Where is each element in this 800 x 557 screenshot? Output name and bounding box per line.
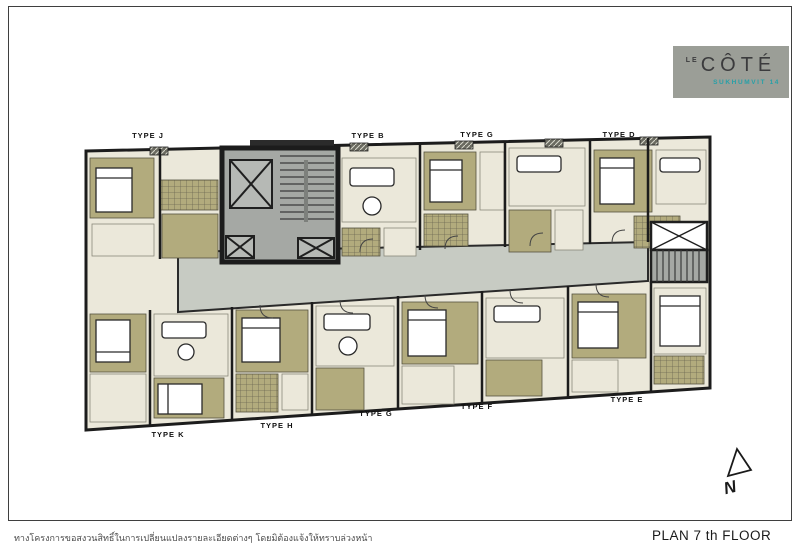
unit-type-label-bottom-k: TYPE K bbox=[151, 430, 184, 439]
room-bath bbox=[160, 180, 218, 210]
unit-type-label-top-j: TYPE J bbox=[132, 131, 164, 140]
unit-type-label-top-b: TYPE B bbox=[351, 131, 384, 140]
bed-icon bbox=[660, 296, 700, 346]
table-icon bbox=[339, 337, 357, 355]
logo-le: LE bbox=[686, 57, 699, 64]
bed-icon bbox=[96, 320, 130, 362]
bed-icon bbox=[578, 302, 618, 348]
sofa-icon bbox=[517, 156, 561, 172]
room-kitchen bbox=[316, 368, 364, 410]
room-bath bbox=[342, 228, 380, 256]
fire-stair bbox=[651, 222, 707, 282]
room-kitchen bbox=[486, 360, 542, 396]
room-hall bbox=[384, 228, 416, 256]
table-icon bbox=[178, 344, 194, 360]
room-bath bbox=[654, 356, 704, 384]
stair-icon bbox=[651, 250, 707, 282]
unit-type-label-top-d: TYPE D bbox=[602, 130, 635, 139]
sofa-icon bbox=[660, 158, 700, 172]
logo: LECÔTÉ SUKHUMVIT 14 bbox=[673, 46, 789, 98]
room-hall bbox=[480, 152, 504, 210]
room-hall bbox=[282, 374, 308, 410]
disclaimer-text: ทางโครงการขอสงวนสิทธิ์ในการเปลี่ยนแปลงรา… bbox=[14, 531, 372, 545]
building bbox=[86, 137, 710, 430]
elevator-shaft-icon bbox=[230, 160, 272, 208]
bed-icon bbox=[96, 168, 132, 212]
north-arrow-icon bbox=[728, 449, 751, 476]
room-living bbox=[92, 224, 154, 256]
bed-icon bbox=[158, 384, 202, 414]
room-living bbox=[402, 366, 454, 404]
plan-title: PLAN 7 th FLOOR bbox=[652, 528, 771, 543]
room-kitchen bbox=[162, 214, 218, 258]
room-hall bbox=[555, 210, 583, 250]
unit-type-label-bottom-h: TYPE H bbox=[260, 421, 293, 430]
unit-type-label-bottom-g: TYPE G bbox=[359, 409, 393, 418]
elevator-core bbox=[222, 140, 338, 262]
bed-icon bbox=[430, 160, 462, 202]
unit-type-label-bottom-f: TYPE F bbox=[461, 402, 493, 411]
room-bath bbox=[236, 374, 278, 412]
table-icon bbox=[363, 197, 381, 215]
bed-icon bbox=[600, 158, 634, 204]
bed-icon bbox=[408, 310, 446, 356]
logo-name: CÔTÉ bbox=[701, 54, 777, 76]
sofa-icon bbox=[162, 322, 206, 338]
room-living bbox=[572, 360, 618, 392]
room-living bbox=[90, 374, 146, 422]
unit-type-label-top-g: TYPE G bbox=[460, 130, 494, 139]
sofa-icon bbox=[324, 314, 370, 330]
bed-icon bbox=[242, 318, 280, 362]
logo-subtitle: SUKHUMVIT 14 bbox=[673, 79, 789, 86]
sofa-icon bbox=[350, 168, 394, 186]
room-bath bbox=[424, 214, 468, 246]
sofa-icon bbox=[494, 306, 540, 322]
unit-type-label-bottom-e: TYPE E bbox=[611, 395, 644, 404]
logo-wordmark: LECÔTÉ bbox=[673, 54, 789, 77]
